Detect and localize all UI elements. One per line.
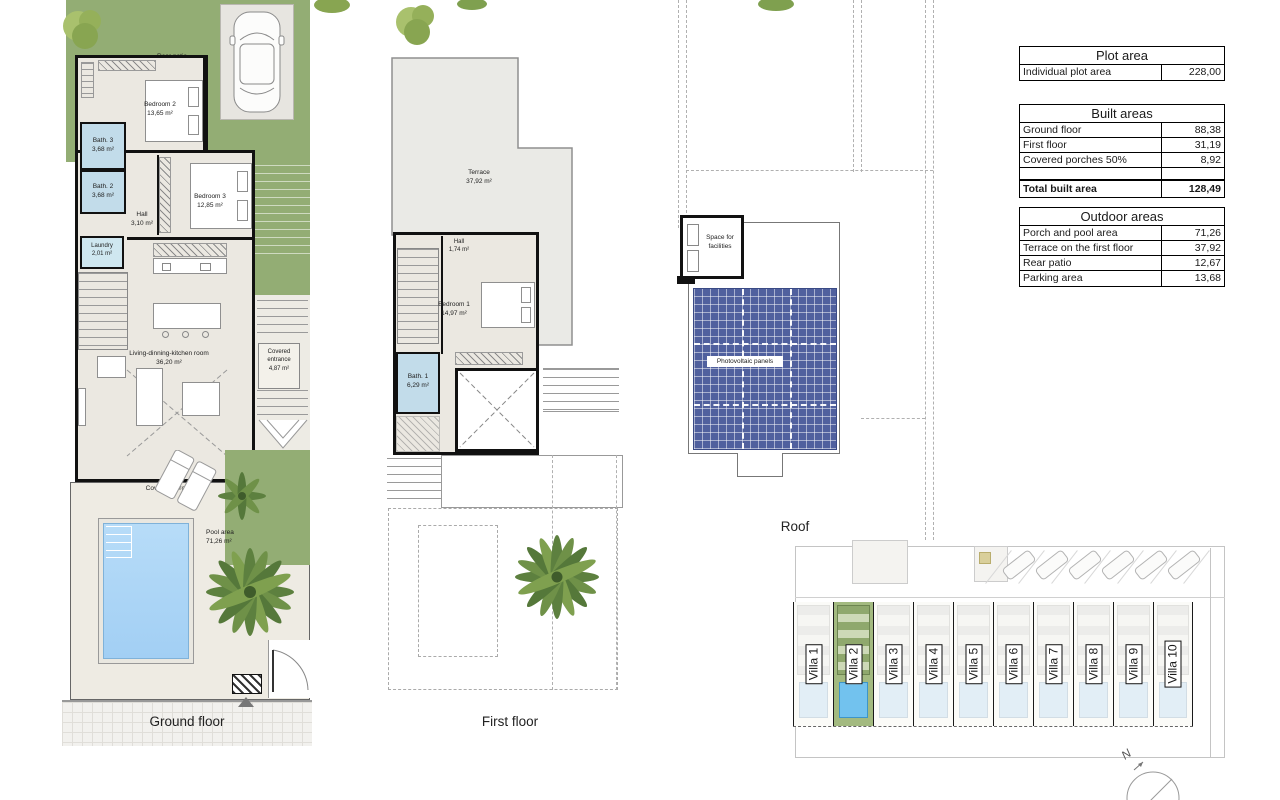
dashed-line	[678, 0, 679, 228]
frond-icon	[312, 0, 352, 22]
void-cross	[458, 371, 536, 449]
driveway-texture	[254, 165, 310, 260]
panel-divider	[694, 343, 836, 345]
tv-bench-icon	[78, 388, 86, 426]
table-row: Parking area 13,68	[1020, 271, 1224, 286]
pool-steps	[106, 526, 132, 558]
dashed-line	[616, 455, 617, 690]
dashed-line	[925, 0, 926, 540]
shower-hatch	[396, 416, 440, 452]
room-label-bedroom2: Bedroom 213,65 m²	[124, 100, 196, 118]
entrance-steps-upper	[257, 300, 308, 340]
sofa-icon	[136, 368, 163, 426]
bed-icon	[481, 282, 535, 328]
frond-icon	[756, 0, 796, 18]
dashed-line	[853, 0, 854, 172]
room-label-terrace: Terrace37,92 m²	[443, 168, 515, 186]
outdoor-areas-table: Outdoor areas Porch and pool area 71,26 …	[1019, 207, 1225, 287]
room-label-panels: Photovoltaic panels	[707, 356, 783, 367]
wall	[677, 276, 695, 284]
dashed-line	[861, 0, 862, 172]
dashed-line	[933, 0, 934, 540]
entrance-arrow	[238, 697, 254, 707]
table-row: Porch and pool area 71,26	[1020, 226, 1224, 241]
roof-label: Roof	[750, 519, 840, 534]
panel-divider	[694, 404, 836, 406]
equipment	[687, 250, 699, 272]
room-label-bath2: Bath. 23,68 m²	[80, 182, 126, 200]
sink-icon	[162, 263, 171, 271]
entry-step-hatch	[232, 674, 262, 694]
villa-row: Villa 1 Villa 2 Villa 3 Villa 4 Villa 5 …	[793, 602, 1193, 727]
villa-label: Villa 7	[1045, 644, 1062, 684]
villa-label: Villa 8	[1085, 644, 1102, 684]
north-label: N	[1119, 746, 1134, 763]
villa-label: Villa 10	[1165, 640, 1182, 687]
pillow	[237, 171, 248, 192]
dining-table-icon	[182, 382, 220, 416]
road-edge	[795, 597, 1225, 598]
closet	[81, 62, 94, 98]
door-arc	[268, 640, 310, 698]
room-label-bedroom1: Bedroom 114,97 m²	[421, 300, 487, 318]
equipment	[687, 224, 699, 246]
pillow	[521, 287, 531, 303]
armchair-icon	[97, 356, 126, 378]
first-floor-plan: Terrace37,92 m² Hall1,74 m² Bedroom 114,…	[385, 0, 637, 760]
villa-label: Villa 3	[885, 644, 902, 684]
wall	[127, 237, 253, 240]
site-villa-8: Villa 8	[1073, 602, 1113, 726]
villa-label: Villa 2	[845, 644, 862, 684]
table-row-total: Total built area 128,49	[1020, 180, 1224, 197]
balustrade-hatch	[455, 352, 523, 365]
villa-label: Villa 5	[965, 644, 982, 684]
table-row: Rear patio 12,67	[1020, 256, 1224, 271]
stool-icon	[182, 331, 189, 338]
table-row: Covered porches 50% 8,92	[1020, 153, 1224, 168]
room-label-hall-first: Hall1,74 m²	[440, 238, 478, 255]
sun-lounger-icon	[150, 450, 224, 514]
entrance-steps-lower	[257, 390, 308, 416]
ramp-chevrons	[257, 418, 309, 452]
exterior-stairs	[543, 368, 619, 412]
site-villa-6: Villa 6	[993, 602, 1033, 726]
pool-water	[103, 523, 189, 659]
villa-label: Villa 6	[1005, 644, 1022, 684]
dashed-line	[686, 170, 933, 171]
dashed-line	[686, 0, 687, 228]
palm-tree-icon	[214, 468, 270, 524]
room-label-bath1: Bath. 16,29 m²	[398, 372, 438, 390]
table-row: Individual plot area 228,00	[1020, 65, 1224, 80]
ground-floor-plan: Rear patio 13,00 m² Bath. 33,68 m² Bath.…	[62, 0, 312, 760]
table-row: Ground floor 88,38	[1020, 123, 1224, 138]
room-label-laundry: Laundry2,01 m²	[80, 242, 124, 259]
table-row: First floor 31,19	[1020, 138, 1224, 153]
site-villa-2-highlighted: Villa 2	[833, 602, 873, 726]
bush-icon	[58, 4, 108, 54]
room-label-bath3: Bath. 33,68 m²	[80, 136, 126, 154]
car-icon	[228, 8, 286, 116]
room-label-facilities: Space for facilities	[699, 233, 741, 251]
room-label-hall: Hall3,10 m²	[122, 210, 162, 228]
built-areas-table: Built areas Ground floor 88,38 First flo…	[1019, 104, 1225, 198]
kitchen-hatch	[153, 243, 227, 257]
table-row: Terrace on the first floor 37,92	[1020, 241, 1224, 256]
site-structure	[979, 552, 991, 564]
kitchen-island	[153, 303, 221, 329]
first-floor-label: First floor	[445, 714, 575, 729]
villa-label: Villa 4	[925, 644, 942, 684]
site-villa-7: Villa 7	[1033, 602, 1073, 726]
roof-outline-extension	[737, 453, 783, 477]
plot-area-table: Plot area Individual plot area 228,00	[1019, 46, 1225, 81]
site-villa-1: Villa 1	[793, 602, 833, 726]
table-row-empty	[1020, 168, 1224, 180]
panel-divider	[742, 289, 744, 449]
panel-divider	[790, 289, 792, 449]
frond-icon	[455, 0, 489, 16]
site-structure	[852, 540, 908, 584]
floorplan-sheet: Rear patio 13,00 m² Bath. 33,68 m² Bath.…	[0, 0, 1280, 800]
photovoltaic-panels	[693, 288, 837, 450]
ground-floor-label: Ground floor	[102, 714, 272, 729]
table-title: Built areas	[1020, 105, 1224, 123]
site-villa-9: Villa 9	[1113, 602, 1153, 726]
kitchen-counter	[153, 258, 227, 274]
site-edge-line	[1210, 548, 1211, 758]
table-title: Plot area	[1020, 47, 1224, 65]
hob-icon	[200, 263, 211, 271]
stairs	[397, 248, 439, 344]
site-villa-10: Villa 10	[1153, 602, 1193, 726]
exterior-steps	[387, 458, 441, 504]
wall	[203, 58, 206, 153]
pool-deck	[98, 518, 194, 664]
bush-icon	[391, 0, 439, 48]
pillow	[521, 307, 531, 323]
wardrobe-hatch	[98, 60, 156, 71]
stool-icon	[202, 331, 209, 338]
north-compass: N	[1105, 742, 1200, 800]
pool-outline-dashed	[418, 525, 498, 657]
room-label-covered-entrance: Covered entrance4,87 m²	[260, 348, 298, 373]
palm-tree-icon	[200, 542, 300, 642]
room-label-bedroom3: Bedroom 312,85 m²	[174, 192, 246, 210]
room-label-living: Living-dinning-kitchen room36,20 m²	[114, 349, 224, 367]
villa-label: Villa 1	[805, 644, 822, 684]
site-villa-5: Villa 5	[953, 602, 993, 726]
dashed-line	[861, 418, 925, 419]
site-villa-4: Villa 4	[913, 602, 953, 726]
porch-roof-outline	[441, 455, 623, 508]
stool-icon	[162, 331, 169, 338]
table-title: Outdoor areas	[1020, 208, 1224, 226]
stairs	[78, 272, 128, 350]
site-villa-3: Villa 3	[873, 602, 913, 726]
palm-tree-icon	[510, 530, 605, 625]
villa-label: Villa 9	[1125, 644, 1142, 684]
roof-plan: Space for facilities Photovoltaic panels…	[655, 0, 955, 545]
